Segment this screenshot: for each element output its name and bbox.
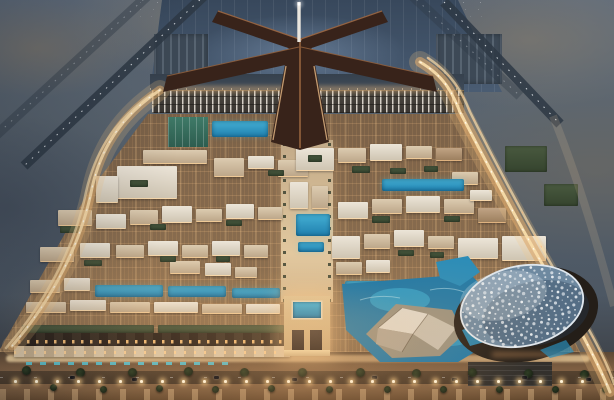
building-block	[246, 304, 280, 314]
building-block	[205, 263, 231, 276]
palm-tree	[212, 386, 219, 393]
building-block	[406, 146, 432, 159]
street-light	[329, 380, 332, 383]
building-block	[96, 176, 118, 203]
green-roof	[430, 252, 444, 258]
green-roof	[226, 220, 242, 226]
green-roof	[308, 155, 322, 162]
green-roof	[505, 146, 547, 172]
building-block	[470, 190, 492, 201]
parking-structure-stripes	[152, 90, 464, 113]
street-light	[140, 380, 143, 383]
street-light	[308, 380, 311, 383]
building-block	[332, 236, 360, 259]
building-block	[130, 210, 158, 225]
building-block	[116, 245, 144, 258]
building-block	[478, 208, 506, 223]
gateway-door-right	[310, 330, 322, 352]
building-block	[370, 144, 402, 161]
street-light	[392, 380, 395, 383]
building-block	[444, 199, 474, 214]
pool	[212, 121, 268, 137]
building-block	[96, 214, 126, 229]
palm-tree	[22, 366, 31, 375]
building-block	[290, 182, 308, 209]
street-light	[35, 380, 38, 383]
palm-tree	[602, 386, 609, 393]
building-block	[394, 230, 424, 247]
palm-tree	[496, 386, 503, 393]
building-block	[148, 241, 178, 256]
building-block	[196, 209, 222, 222]
street-light	[497, 380, 500, 383]
building-block	[366, 260, 390, 273]
street-light	[224, 380, 227, 383]
building-block	[80, 243, 110, 258]
palm-tree	[76, 368, 85, 377]
palm-tree	[384, 386, 391, 393]
green-roof	[390, 168, 406, 174]
car	[522, 376, 527, 379]
street-light	[455, 380, 458, 383]
building-block	[226, 204, 254, 219]
palm-tree	[412, 369, 421, 378]
street-light	[371, 380, 374, 383]
palm-tree	[50, 384, 57, 391]
street-light	[56, 380, 59, 383]
palm-tree	[268, 385, 275, 392]
building-block	[338, 202, 368, 219]
building-block	[244, 245, 268, 258]
street-light	[266, 380, 269, 383]
palm-tree	[128, 368, 137, 377]
pool	[345, 281, 381, 294]
residential-row	[14, 346, 290, 357]
building-block	[258, 207, 282, 220]
building-block	[212, 241, 240, 256]
street-light	[182, 380, 185, 383]
building-block	[406, 196, 440, 213]
street-light	[434, 380, 437, 383]
green-roof	[444, 216, 460, 222]
building-block	[248, 156, 274, 169]
aerial-masterplan-rendering	[0, 0, 614, 400]
gateway-courtyard-pool	[293, 302, 321, 318]
green-roof	[84, 260, 102, 266]
building-block	[143, 150, 207, 164]
building-block	[235, 267, 257, 278]
building-block	[202, 304, 242, 314]
residential-row	[18, 333, 286, 346]
building-block	[70, 300, 106, 311]
palm-tree	[184, 367, 193, 376]
building-block	[502, 236, 546, 261]
street-light	[245, 380, 248, 383]
street-light	[98, 380, 101, 383]
building-block	[170, 261, 200, 274]
pool	[168, 286, 226, 297]
green-roof	[22, 325, 154, 333]
car	[372, 376, 377, 379]
building-block	[110, 302, 150, 313]
building-block	[312, 186, 328, 209]
palm-tree	[100, 386, 107, 393]
palm-tree	[156, 385, 163, 392]
street-light	[77, 380, 80, 383]
pool	[95, 285, 163, 297]
street-light	[581, 380, 584, 383]
building-block	[162, 206, 192, 223]
street-light	[287, 380, 290, 383]
building-block	[364, 234, 390, 249]
promenade-water-features	[26, 362, 236, 365]
palm-tree	[552, 386, 559, 393]
building-block	[58, 210, 92, 226]
building-block	[458, 238, 498, 259]
street-light	[539, 380, 542, 383]
building-block	[338, 148, 366, 163]
building-block	[40, 247, 74, 262]
street-light	[350, 380, 353, 383]
building-block	[336, 262, 362, 275]
pool	[298, 242, 324, 252]
palm-tree	[240, 368, 249, 377]
grand-gateway	[284, 296, 330, 356]
street-light	[476, 380, 479, 383]
car	[586, 378, 591, 381]
building-block	[214, 158, 244, 177]
green-roof	[160, 256, 176, 262]
green-roof	[60, 226, 80, 233]
green-roof	[352, 166, 370, 173]
car	[70, 376, 75, 379]
palm-tree	[468, 368, 477, 377]
palm-tree	[356, 368, 365, 377]
terminal-concourse-band	[150, 74, 464, 90]
street-light	[413, 380, 416, 383]
street-light	[119, 380, 122, 383]
gateway-door-left	[292, 330, 304, 352]
green-roof	[216, 256, 230, 262]
green-roof	[158, 325, 284, 333]
street-light	[560, 380, 563, 383]
green-roof	[150, 224, 166, 230]
green-roof	[268, 170, 284, 176]
street-light	[518, 380, 521, 383]
gateway-steps	[284, 350, 330, 356]
palm-tree	[326, 386, 333, 393]
palm-tree	[298, 368, 307, 377]
pool	[382, 179, 464, 191]
building-block	[372, 199, 402, 214]
pool	[232, 288, 280, 298]
green-roof	[372, 216, 390, 223]
car	[292, 378, 297, 381]
building-block	[436, 148, 462, 161]
green-roof	[424, 166, 438, 172]
pool	[296, 214, 330, 236]
street-light	[161, 380, 164, 383]
building-block	[26, 302, 66, 313]
boulevard-sidewalk	[0, 389, 614, 400]
palm-tree	[440, 386, 447, 393]
green-roof	[544, 184, 578, 206]
street-light	[203, 380, 206, 383]
car	[214, 376, 219, 379]
car	[132, 378, 137, 381]
building-block	[30, 280, 60, 293]
building-block	[154, 302, 198, 313]
sports-courts	[168, 117, 208, 147]
building-block	[428, 236, 454, 249]
street-light	[14, 380, 17, 383]
building-block	[182, 245, 208, 258]
building-block	[64, 278, 90, 291]
green-roof	[398, 250, 414, 256]
green-roof	[130, 180, 148, 187]
